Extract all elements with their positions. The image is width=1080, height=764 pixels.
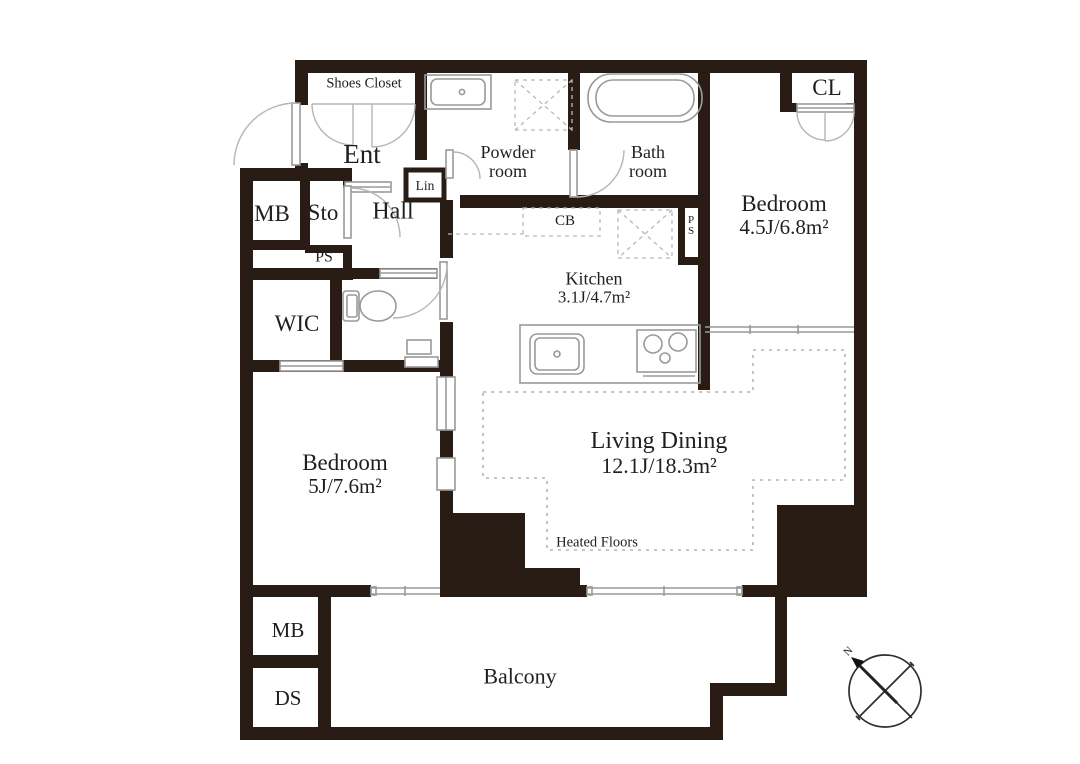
label-entrance: Ent bbox=[343, 140, 381, 168]
bathtub-icon bbox=[588, 74, 702, 122]
walls bbox=[240, 60, 867, 740]
floor-plan-drawing bbox=[0, 0, 1080, 764]
label-hall: Hall bbox=[372, 199, 413, 224]
label-meter-box-lower: MB bbox=[272, 619, 305, 641]
label-linen-closet: Lin bbox=[416, 179, 435, 193]
stove-icon bbox=[637, 330, 696, 376]
label-heated-floors: Heated Floors bbox=[556, 535, 638, 550]
wic-sliding-door bbox=[280, 361, 343, 371]
label-kitchen: Kitchen 3.1J/4.7m² bbox=[558, 270, 630, 307]
floor-plan: Shoes Closet Ent Powder room Bath room C… bbox=[0, 0, 1080, 764]
entrance-door-arc bbox=[234, 103, 300, 165]
label-balcony: Balcony bbox=[483, 664, 556, 687]
north-arrow bbox=[851, 657, 897, 703]
label-pipe-space-hall: PS bbox=[315, 250, 333, 267]
label-storage: Sto bbox=[308, 201, 339, 225]
refrigerator-space-dashed bbox=[618, 210, 672, 258]
label-living-dining: Living Dining 12.1J/18.3m² bbox=[591, 429, 728, 477]
powder-room-door-arc bbox=[446, 150, 480, 179]
label-shoes-closet: Shoes Closet bbox=[326, 76, 401, 91]
hall-living-door-arc bbox=[393, 258, 456, 322]
label-closet: CL bbox=[812, 76, 841, 100]
compass-icon bbox=[849, 655, 921, 727]
closet-bifold-doors bbox=[797, 104, 854, 141]
label-bath-room: Bath room bbox=[629, 143, 667, 181]
washer-space-dashed bbox=[515, 80, 572, 130]
label-duct-space: DS bbox=[275, 687, 302, 709]
bedroom-partition-line bbox=[705, 325, 854, 334]
label-pipe-space-kitchen: P S bbox=[688, 215, 694, 237]
label-cupboard: CB bbox=[555, 214, 575, 230]
cupboard-dashed bbox=[448, 208, 600, 236]
bathroom-door-arc bbox=[570, 150, 624, 197]
label-bedroom-45: Bedroom 4.5J/6.8m² bbox=[739, 192, 828, 238]
vanity-sink-icon bbox=[425, 75, 491, 109]
label-bedroom-5: Bedroom 5J/7.6m² bbox=[302, 451, 388, 497]
toilet-icon bbox=[343, 291, 431, 354]
label-meter-box-upper: MB bbox=[254, 202, 290, 226]
label-powder-room: Powder room bbox=[481, 143, 536, 181]
label-walk-in-closet: WIC bbox=[275, 312, 320, 336]
